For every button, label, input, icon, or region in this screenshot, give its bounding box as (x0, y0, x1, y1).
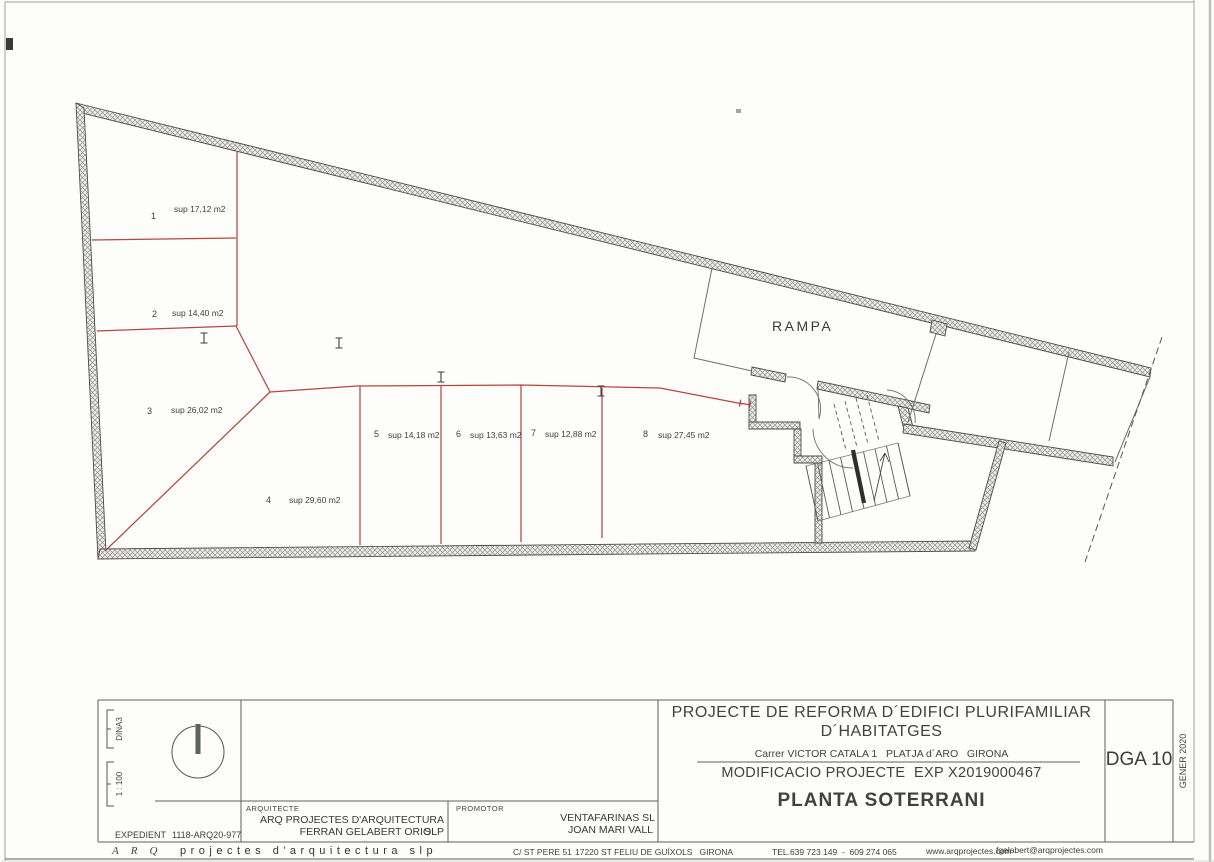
developer-name: VENTAFARINAS SL (448, 812, 655, 824)
footer-street: C/ ST PERE 51 (513, 847, 572, 857)
expedient-label: EXPEDIENT (115, 830, 166, 840)
stair-upper-flight-dashed (834, 395, 879, 450)
brand-initials: ARQ (112, 845, 169, 857)
compass-needle-icon (196, 724, 201, 754)
developer-person: JOAN MARI VALL (448, 824, 653, 836)
room-divider-line (1049, 352, 1069, 441)
wall-middle (903, 424, 1113, 466)
project-title-line2: D´HABITATGES (658, 723, 1105, 741)
project-title-line1: PROJECTE DE REFORMA D´EDIFICI PLURIFAMIL… (658, 704, 1105, 722)
title-block-logo-area (107, 710, 224, 806)
space-area-label: sup 29,60 m2 (289, 495, 341, 505)
space-number: 2 (152, 309, 157, 319)
space-area-label: sup 14,40 m2 (172, 308, 224, 318)
architect-label: ARQUITECTE (246, 804, 299, 813)
space-number: 6 (456, 429, 461, 439)
paper-size-label: DINA3 (115, 717, 124, 741)
beam-marker-icon (201, 333, 208, 343)
footer-city: 17220 ST FELIU DE GUÍXOLS GIRONA (575, 847, 733, 857)
wall-stair-4 (794, 456, 822, 463)
space-area-label: sup 12,88 m2 (545, 429, 597, 439)
rampa-label: RAMPA (772, 318, 833, 334)
wall-stair-2 (749, 422, 800, 429)
rampa-edge-line (694, 268, 752, 371)
cut-edge-line (1115, 377, 1150, 462)
architect-person: FERRAN GELABERT ORIOL (241, 826, 437, 838)
sheet-code: DGA 10 (1105, 749, 1173, 771)
space-area-label: sup 26,02 m2 (171, 405, 223, 415)
beam-marker-icon (598, 386, 605, 396)
door-arc (787, 377, 821, 419)
space-area-label: sup 14,18 m2 (388, 430, 440, 440)
beam-marker-icon (336, 338, 343, 348)
scanned-plan-sheet: { "plan": { "rampa_label": "RAMPA", "spa… (0, 0, 1214, 862)
space-number: 7 (531, 428, 536, 438)
space-number: 3 (147, 406, 152, 416)
scan-speck (6, 38, 13, 50)
sheet-date-label: GENER 2020 (1178, 734, 1188, 789)
stair-handrail (853, 450, 864, 503)
modification-line: MODIFICACIO PROJECTE EXP X2019000467 (658, 765, 1105, 781)
expedient-value: 1118-ARQ20-977 (172, 830, 241, 840)
paper-size-bracket (107, 710, 114, 748)
sheet-title: PLANTA SOTERRANI (658, 790, 1105, 812)
footer-phone: TEL.639 723 149 - 609 274 065 (772, 847, 897, 857)
space-number: 8 (643, 429, 648, 439)
footer-email: fgelabert@arqprojectes.com (996, 845, 1103, 855)
space-number: 5 (374, 429, 379, 439)
beam-markers (201, 333, 605, 396)
space-area-label: sup 13,63 m2 (470, 430, 522, 440)
space-area-label: sup 17,12 m2 (174, 204, 226, 214)
door-leaf (818, 386, 819, 419)
wall-rampa-a (751, 367, 786, 382)
scale-label: 1 : 100 (115, 771, 124, 796)
wall-stair-right (969, 441, 1006, 550)
space-number: 1 (151, 211, 156, 221)
wall-bottom (98, 541, 975, 559)
scan-speck (736, 109, 741, 113)
space-number: 4 (266, 495, 271, 505)
wall-stair-5 (815, 463, 822, 543)
brand-name: projectes d'arquitectura slp (180, 845, 437, 857)
project-address: Carrer VICTOR CATALA 1 PLATJA d´ARO GIRO… (658, 748, 1105, 760)
scale-bracket (107, 762, 114, 806)
beam-marker-icon (438, 372, 445, 382)
space-area-label: sup 27,45 m2 (658, 430, 710, 440)
